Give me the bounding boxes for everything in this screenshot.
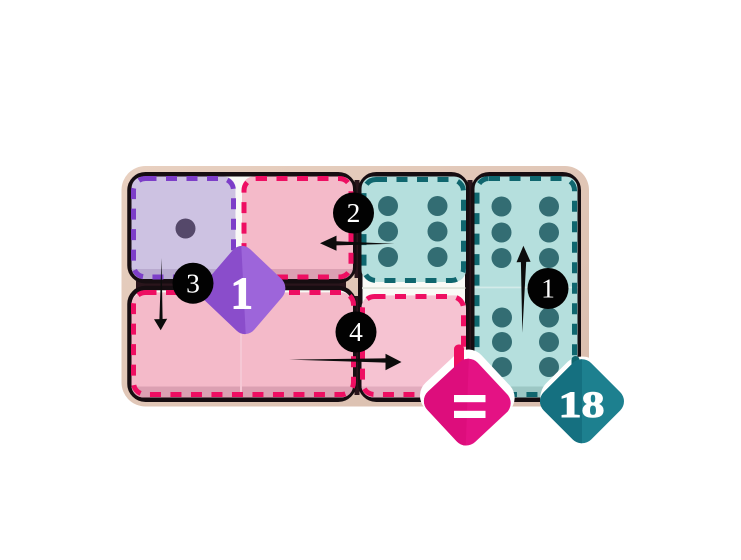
svg-text:18: 18 [559, 385, 605, 426]
svg-text:2: 2 [347, 197, 361, 228]
svg-text:1: 1 [541, 273, 555, 304]
svg-text:4: 4 [349, 316, 363, 347]
svg-text:1: 1 [231, 269, 254, 319]
svg-text:3: 3 [186, 267, 200, 298]
